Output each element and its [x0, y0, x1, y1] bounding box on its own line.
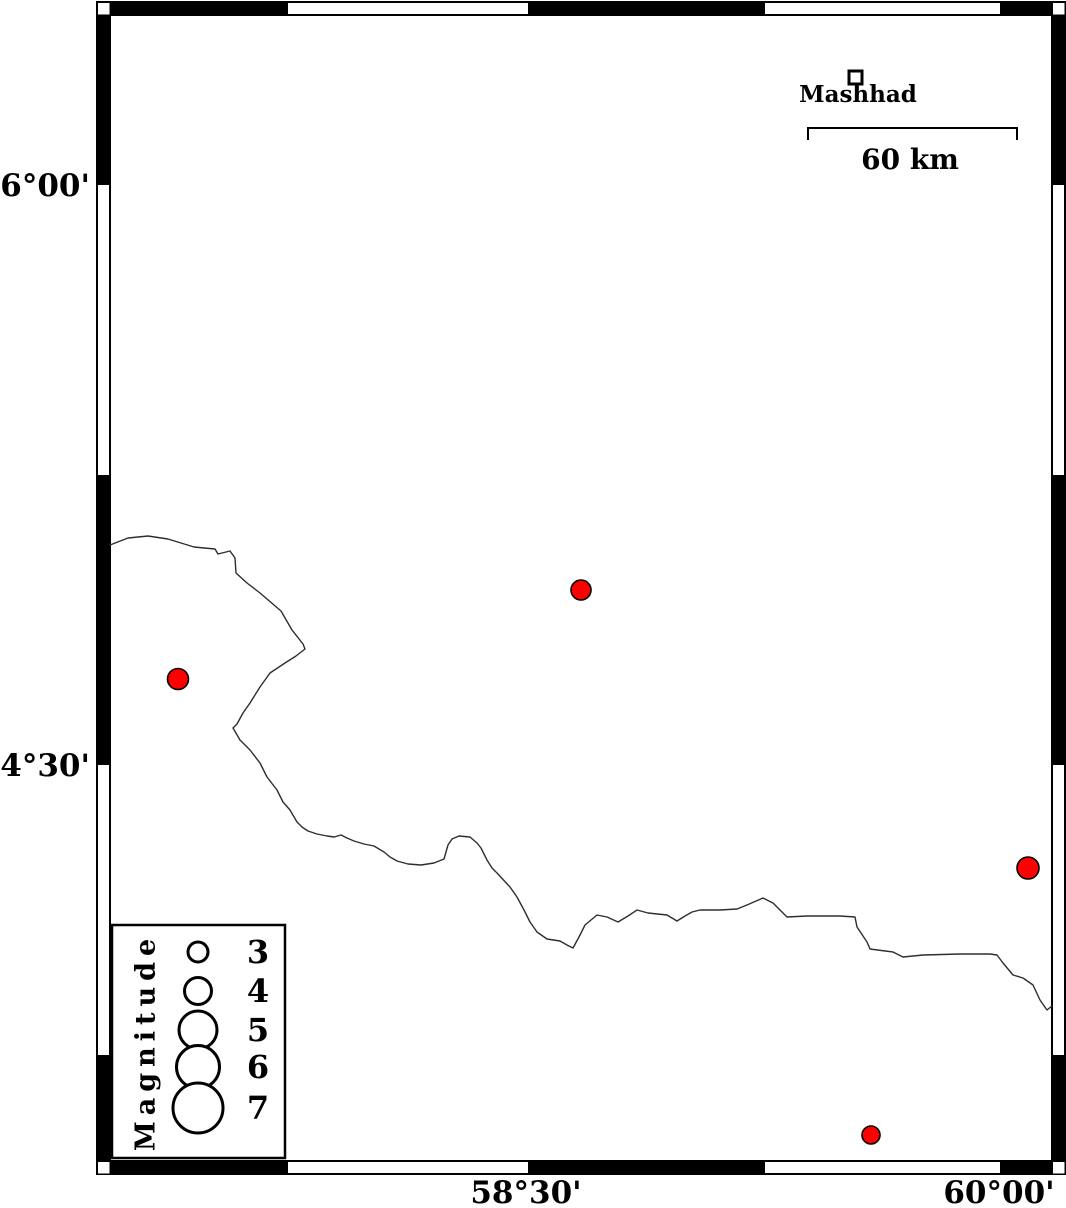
epicenter-dot	[862, 1126, 880, 1144]
epicenter-dot	[168, 669, 189, 690]
legend-magnitude-label: 6	[247, 1048, 269, 1086]
frame-segment	[97, 1055, 110, 1161]
lat-label-36-00: 36°00'	[0, 168, 90, 204]
frame-corner	[1052, 2, 1065, 15]
frame-segment	[1052, 475, 1065, 765]
frame-segment	[110, 1161, 288, 1174]
epicenter-layer	[168, 580, 1040, 1144]
legend-title: Magnitude	[131, 933, 162, 1151]
frame-segment	[97, 15, 110, 185]
lon-label-58-30: 58°30'	[470, 1175, 581, 1208]
city-label: Mashhad	[799, 81, 917, 108]
frame-segment	[1000, 1161, 1052, 1174]
magnitude-legend: Magnitude 34567	[112, 925, 285, 1158]
seismicity-map: Mashhad 60 km 36°00' 34°30' 58°30' 60°00…	[0, 0, 1066, 1208]
lon-label-60-00: 60°00'	[943, 1175, 1054, 1208]
city-marker: Mashhad	[799, 71, 917, 108]
frame-segment	[528, 1161, 765, 1174]
legend-magnitude-label: 4	[247, 972, 269, 1010]
frame-corner	[97, 1161, 110, 1174]
frame-segment	[1000, 2, 1052, 15]
frame-segment	[97, 475, 110, 765]
frame-segment	[528, 2, 765, 15]
map-canvas: Mashhad 60 km 36°00' 34°30' 58°30' 60°00…	[0, 0, 1066, 1208]
epicenter-dot	[571, 580, 591, 600]
frame-segment	[1052, 1055, 1065, 1161]
lat-label-34-30: 34°30'	[0, 748, 90, 784]
legend-magnitude-circle	[179, 1011, 217, 1049]
legend-magnitude-circle	[188, 942, 208, 962]
frame-segment	[1052, 15, 1065, 185]
legend-magnitude-label: 5	[247, 1011, 269, 1049]
scale-bar-bracket	[808, 128, 1017, 140]
epicenter-dot	[1017, 857, 1039, 879]
legend-magnitude-label: 3	[247, 933, 269, 971]
scale-bar-label: 60 km	[861, 143, 959, 176]
frame-corner	[97, 2, 110, 15]
legend-magnitude-circle	[173, 1083, 223, 1133]
legend-magnitude-circle	[185, 978, 212, 1005]
scale-bar: 60 km	[808, 128, 1017, 176]
frame-corner	[1052, 1161, 1065, 1174]
frame-segment	[110, 2, 288, 15]
legend-magnitude-label: 7	[247, 1089, 269, 1127]
